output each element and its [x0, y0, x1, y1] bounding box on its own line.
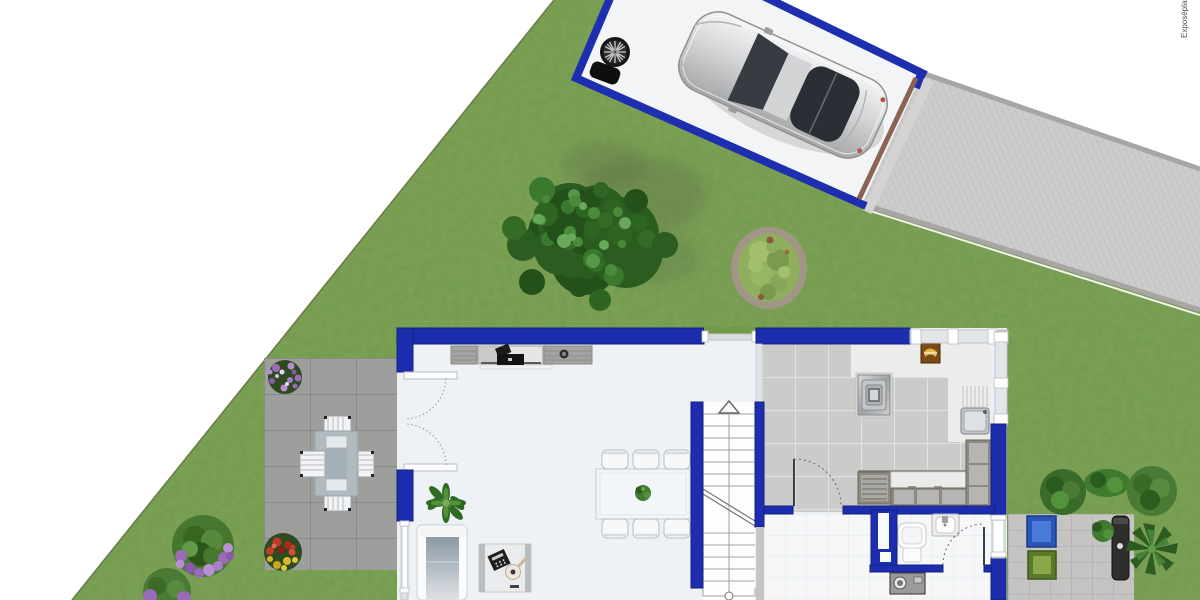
- svg-text:Exposéplan: Exposéplan: [1180, 0, 1189, 38]
